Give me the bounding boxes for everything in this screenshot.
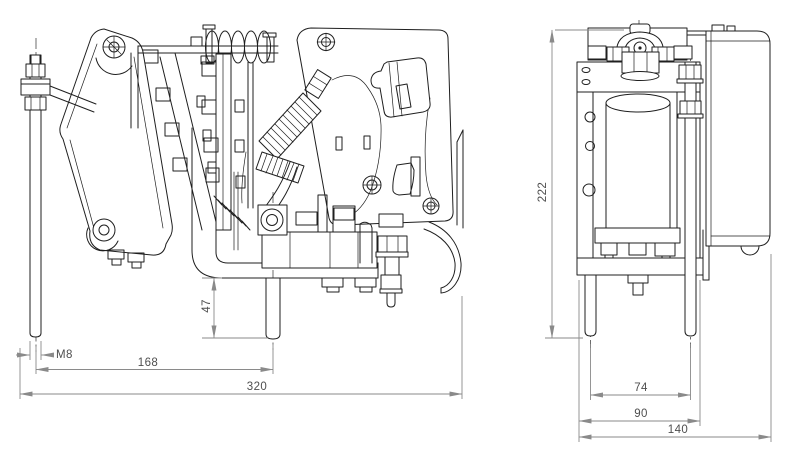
armature-plate — [202, 54, 253, 230]
technical-drawing: M8 168 320 47 222 — [0, 0, 800, 459]
drawing-canvas: M8 168 320 47 222 — [0, 0, 800, 459]
dim-label-frame-width: 90 — [634, 408, 648, 420]
dim-label-stud-projection: 47 — [201, 299, 213, 313]
dim-90: 90 — [579, 280, 700, 442]
dim-m8: M8 — [16, 341, 73, 361]
side-view — [21, 25, 463, 352]
dim-label-thread: M8 — [56, 349, 73, 361]
mounting-stud-right — [677, 62, 703, 336]
dim-label-mounting-span: 168 — [138, 357, 158, 369]
dim-320: 320 — [20, 296, 462, 399]
frame-plate — [297, 28, 463, 228]
base-plate — [577, 258, 703, 336]
dim-label-stud-spacing: 74 — [634, 382, 648, 394]
dim-74: 74 — [591, 344, 691, 400]
dim-label-overall-width: 320 — [247, 381, 267, 393]
dim-label-overall-height: 222 — [537, 182, 549, 202]
arc-chute-box — [60, 29, 172, 268]
dim-140: 140 — [579, 254, 771, 442]
coil — [595, 94, 680, 261]
foot-stud — [585, 275, 596, 336]
front-view — [577, 20, 770, 348]
shunt-hook — [424, 222, 461, 293]
dim-47: 47 — [201, 278, 268, 338]
dim-label-overall-depth: 140 — [668, 424, 688, 436]
foot-stud-left-view — [266, 278, 280, 339]
